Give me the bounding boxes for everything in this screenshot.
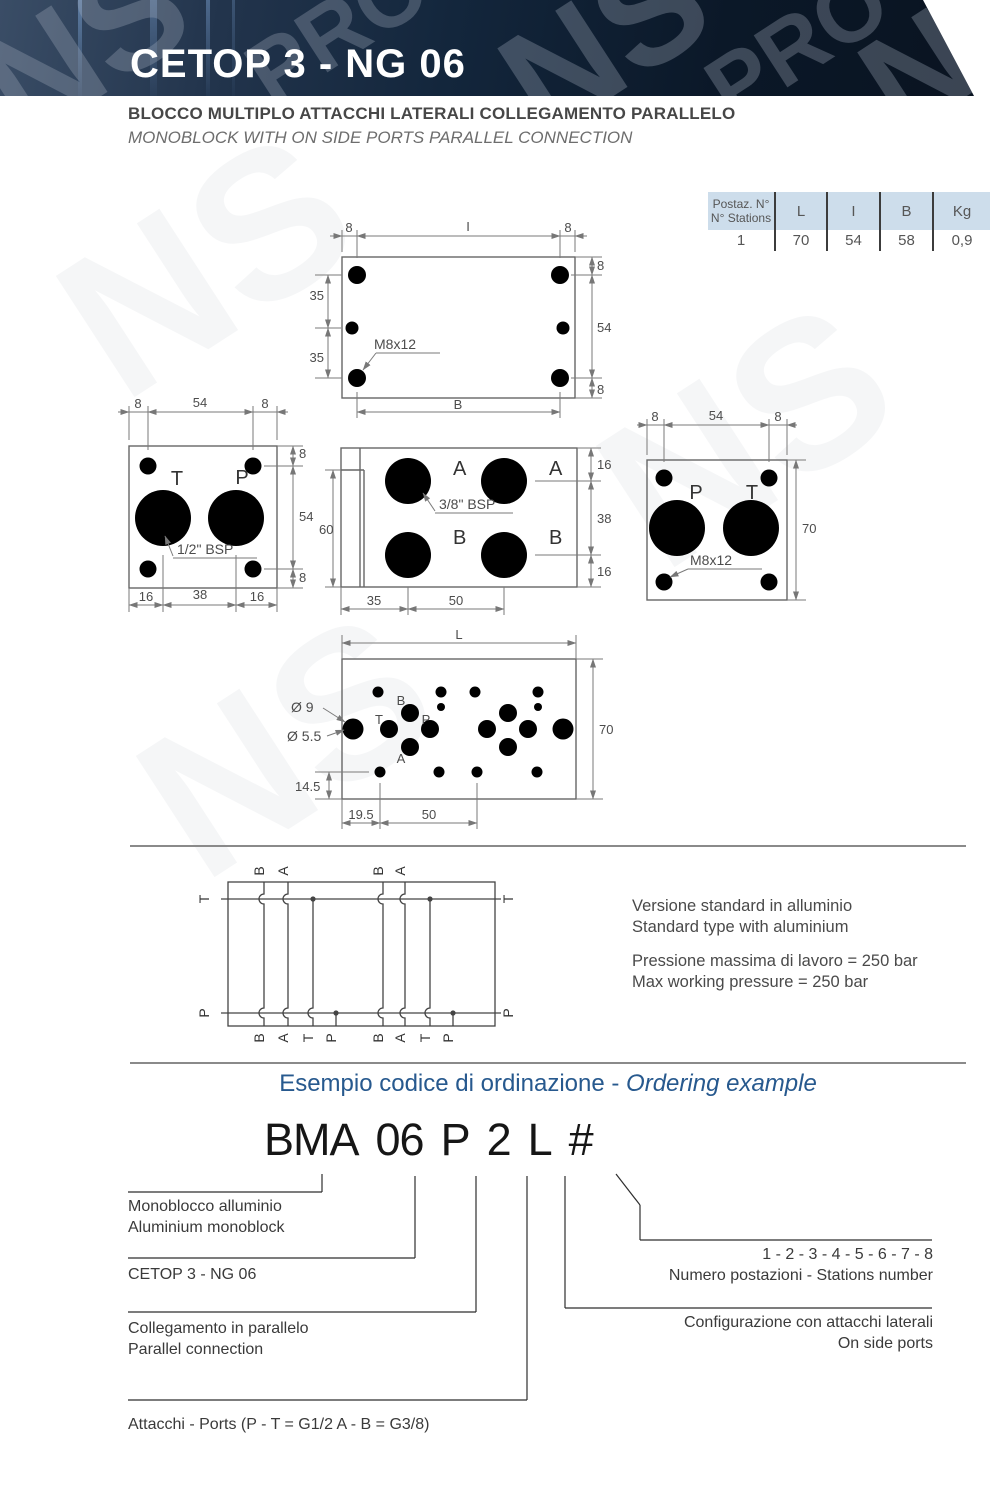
table-row: 17054580,9	[708, 230, 990, 251]
drawing-left-view: 8 54 8 8 54 8 16 38 16 T P 1/2" BSP	[105, 388, 325, 638]
code-part-ports: 2	[487, 1114, 511, 1166]
dim-label: 8	[261, 396, 268, 411]
drawing-pattern-view: L 70 Ø 9 Ø 5.5 14.5 19.5 50 B T P A	[285, 625, 640, 850]
schematic-labels: T T P P B A B A B A T P B A T P	[196, 866, 516, 1043]
dim-label: 8	[564, 220, 571, 235]
dim-label: 16	[139, 589, 153, 604]
dim-label: 35	[310, 288, 324, 303]
subtitle-block: BLOCCO MULTIPLO ATTACCHI LATERALI COLLEG…	[128, 104, 735, 148]
dim-label: 35	[310, 350, 324, 365]
port-label-P: P	[422, 712, 431, 727]
header-banner: NS PRO NS PRO NS CETOP 3 - NG 06	[0, 0, 1000, 96]
dim-label: 54	[709, 408, 723, 423]
dim-label: 38	[597, 511, 611, 526]
dim-label: 50	[422, 807, 436, 822]
dim-label: 8	[345, 220, 352, 235]
svg-text:B: B	[251, 1033, 267, 1042]
svg-text:P: P	[323, 1033, 339, 1042]
dim-label: 60	[319, 522, 333, 537]
svg-text:P: P	[500, 1008, 516, 1017]
svg-text:A: A	[275, 866, 291, 876]
svg-text:P: P	[196, 1008, 212, 1017]
dim-label: 54	[299, 509, 313, 524]
dim-label: 54	[597, 320, 611, 335]
divider	[130, 1062, 966, 1064]
dim-label: B	[454, 397, 463, 412]
code-part-size: 06	[376, 1114, 424, 1166]
block-outline	[644, 460, 787, 600]
port-label-P: P	[689, 482, 702, 504]
svg-text:P: P	[440, 1033, 456, 1042]
dim-label: 50	[449, 593, 463, 608]
svg-text:T: T	[500, 894, 516, 903]
block-outline	[342, 257, 575, 398]
ns-watermark: NS	[838, 0, 1000, 96]
dim-label: 16	[250, 589, 264, 604]
legend-ports: Attacchi - Ports (P - T = G1/2 A - B = G…	[128, 1416, 429, 1434]
notes-block: Versione standard in alluminio Standard …	[632, 896, 918, 993]
table-header-I: I	[827, 192, 880, 230]
note-line: Versione standard in alluminio	[632, 896, 918, 917]
drawing-front-view: 60 16 38 16 35 50 A A B B 3/8" BSP	[315, 425, 625, 640]
port-label-B: B	[549, 527, 562, 549]
dim-label: L	[455, 627, 462, 642]
ordering-heading: Esempio codice di ordinazione - Ordering…	[130, 1070, 966, 1098]
bsp-label: 3/8" BSP	[439, 496, 495, 512]
table-header-B: B	[880, 192, 933, 230]
dim-label: 8	[651, 409, 658, 424]
dim-label: 38	[193, 587, 207, 602]
port-label-B: B	[397, 693, 406, 708]
dim-label: 8	[597, 258, 604, 273]
dim-label: 14.5	[295, 779, 320, 794]
table-header-Kg: Kg	[933, 192, 990, 230]
svg-text:T: T	[196, 894, 212, 903]
dim-label: 8	[299, 570, 306, 585]
svg-text:A: A	[392, 866, 408, 876]
ns-watermark: NS	[476, 0, 732, 96]
block-outline	[129, 446, 277, 588]
svg-text:B: B	[251, 866, 267, 875]
subtitle-italian: BLOCCO MULTIPLO ATTACCHI LATERALI COLLEG…	[128, 104, 735, 124]
schematic-lines	[221, 882, 501, 1026]
dim-label: 54	[193, 395, 207, 410]
code-part-config: L	[528, 1114, 552, 1166]
code-part-series: BMA	[264, 1114, 359, 1166]
dim-label: 8	[597, 382, 604, 397]
note-line: Standard type with aluminium	[632, 917, 918, 938]
block-outline	[338, 659, 578, 799]
diameter-label: Ø 9	[291, 699, 314, 715]
bsp-label: 1/2" BSP	[177, 541, 233, 557]
svg-text:A: A	[392, 1033, 408, 1043]
table-header-stations: Postaz. N°N° Stations	[708, 192, 775, 230]
table-cell: 1	[708, 230, 775, 251]
thread-label: M8x12	[690, 552, 732, 568]
svg-text:T: T	[417, 1033, 433, 1042]
svg-text:B: B	[370, 1033, 386, 1042]
dim-label: 70	[599, 722, 613, 737]
port-label-A: A	[453, 458, 467, 480]
table-header-row: Postaz. N°N° Stations L I B Kg	[708, 192, 990, 230]
dim-label: 16	[597, 457, 611, 472]
dim-label: 8	[299, 446, 306, 461]
dim-label: 16	[597, 564, 611, 579]
svg-text:A: A	[275, 1033, 291, 1043]
port-label-T: T	[375, 712, 383, 727]
port-label-T: T	[171, 468, 183, 490]
leader-lines	[0, 1170, 1000, 1410]
dim-label: 8	[134, 396, 141, 411]
diameter-label: Ø 5.5	[287, 728, 321, 744]
port-label-B: B	[453, 527, 466, 549]
table-cell: 58	[880, 230, 933, 251]
port-label-T: T	[746, 482, 758, 504]
port-label-A: A	[397, 751, 406, 766]
dimensions-table: Postaz. N°N° Stations L I B Kg 17054580,…	[708, 192, 990, 251]
table-header-L: L	[775, 192, 827, 230]
page-title: CETOP 3 - NG 06	[130, 42, 466, 87]
table-cell: 54	[827, 230, 880, 251]
thread-label: M8x12	[374, 336, 416, 352]
drawing-right-view: 8 54 8 70 P T M8x12	[630, 403, 850, 638]
table-cell: 0,9	[933, 230, 990, 251]
dim-label: 70	[802, 521, 816, 536]
ordering-code: BMA 06 P 2 L #	[264, 1114, 593, 1166]
svg-text:B: B	[370, 866, 386, 875]
svg-text:T: T	[300, 1033, 316, 1042]
dim-label: 8	[774, 409, 781, 424]
port-label-P: P	[235, 467, 248, 489]
port-label-A: A	[549, 458, 563, 480]
note-line: Max working pressure = 250 bar	[632, 972, 918, 993]
dim-label: 19.5	[348, 807, 373, 822]
code-part-connection: P	[441, 1114, 470, 1166]
dim-label: I	[466, 219, 470, 234]
dim-label: 35	[367, 593, 381, 608]
code-part-stations: #	[569, 1114, 593, 1166]
table-cell: 70	[775, 230, 827, 251]
hydraulic-schematic: T T P P B A B A B A T P B A T P	[195, 858, 565, 1053]
subtitle-english: MONOBLOCK WITH ON SIDE PORTS PARALLEL CO…	[128, 128, 735, 148]
note-line: Pressione massima di lavoro = 250 bar	[632, 951, 918, 972]
